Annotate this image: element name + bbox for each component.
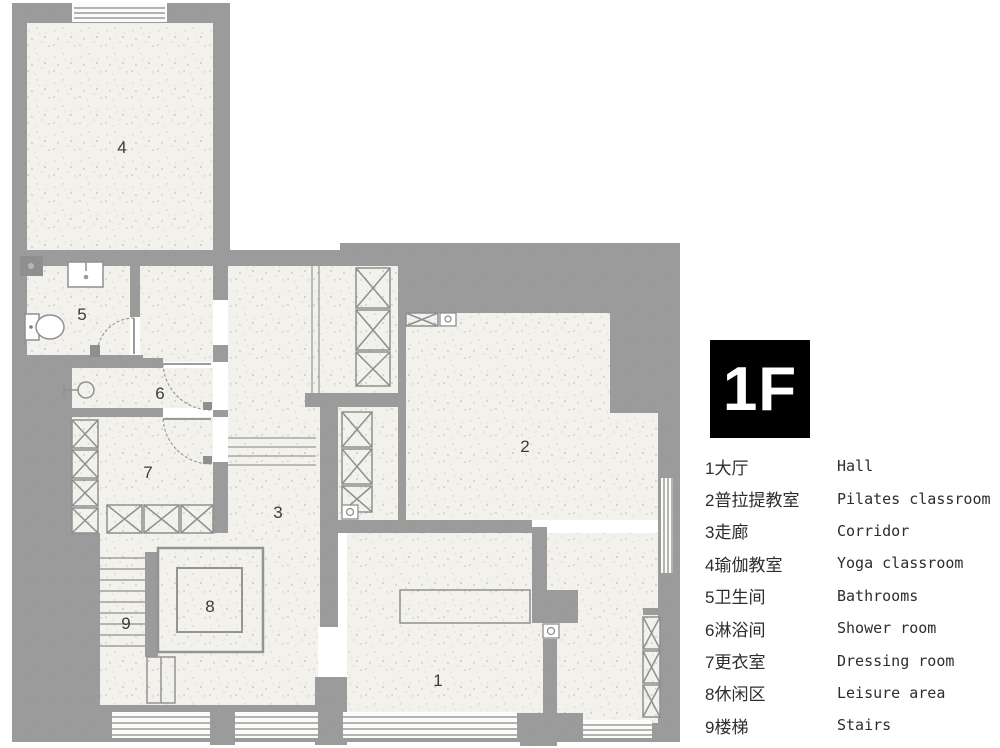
legend: 1F 1大厅 Hall 2普拉提教室 Pilates classroom 3走廊… (705, 340, 1000, 742)
sink-icon (68, 262, 103, 287)
locker-boxes-row (107, 505, 213, 533)
room-label-bathroom: 5 (77, 305, 86, 325)
legend-en-label: Stairs (837, 716, 891, 734)
legend-row-shower: 6淋浴间 Shower room (705, 612, 1000, 644)
window-top (72, 3, 167, 22)
hall-floor (347, 533, 547, 723)
reception-desk (400, 590, 530, 623)
floor-badge: 1F (710, 340, 810, 438)
legend-zh-label: 3走廊 (705, 518, 837, 543)
legend-zh-label: 9楼梯 (705, 713, 837, 738)
legend-en-label: Bathrooms (837, 587, 918, 605)
legend-row-pilates: 2普拉提教室 Pilates classroom (705, 482, 1000, 514)
legend-en-label: Hall (837, 457, 873, 475)
legend-zh-label: 1大厅 (705, 454, 837, 479)
hall-boxes-right (643, 617, 660, 717)
corridor-circle-box (342, 505, 358, 519)
legend-row-hall: 1大厅 Hall (705, 450, 1000, 482)
legend-en-label: Yoga classroom (837, 554, 963, 572)
floor-badge-label: 1F (723, 354, 797, 425)
room-label-leisure-area: 8 (205, 597, 214, 617)
hall-circle-box (543, 624, 559, 638)
legend-zh-label: 7更衣室 (705, 648, 837, 673)
legend-zh-label: 5卫生间 (705, 583, 837, 608)
room-4-floor (27, 23, 213, 250)
column-boxes-lower (342, 412, 372, 512)
window-bottom-4 (583, 720, 652, 738)
legend-row-stairs: 9楼梯 Stairs (705, 709, 1000, 741)
room-label-yoga-classroom: 4 (117, 138, 126, 158)
legend-row-leisure: 8休闲区 Leisure area (705, 677, 1000, 709)
room-label-corridor: 3 (273, 503, 282, 523)
legend-row-dressing: 7更衣室 Dressing room (705, 644, 1000, 676)
legend-en-label: Dressing room (837, 652, 954, 670)
legend-zh-label: 6淋浴间 (705, 616, 837, 641)
window-bottom-2 (235, 712, 318, 738)
window-bottom-1 (112, 712, 210, 738)
legend-row-bathrooms: 5卫生间 Bathrooms (705, 580, 1000, 612)
legend-row-yoga: 4瑜伽教室 Yoga classroom (705, 547, 1000, 579)
legend-zh-label: 2普拉提教室 (705, 486, 837, 511)
window-right (661, 478, 673, 573)
room-label-stairs: 9 (121, 614, 130, 634)
room-2-mini-box (440, 313, 456, 326)
room-label-shower-room: 6 (155, 384, 164, 404)
room-label-hall: 1 (433, 671, 442, 691)
legend-en-label: Leisure area (837, 684, 945, 702)
legend-zh-label: 8休闲区 (705, 680, 837, 705)
legend-en-label: Pilates classroom (837, 490, 991, 508)
room-2-floor-upper (406, 313, 610, 413)
hall-floor-right (547, 533, 658, 723)
legend-rows: 1大厅 Hall 2普拉提教室 Pilates classroom 3走廊 Co… (705, 450, 1000, 742)
legend-row-corridor: 3走廊 Corridor (705, 515, 1000, 547)
vestibule-floor (140, 266, 213, 362)
room-2-corner-box (406, 313, 438, 326)
toilet-icon (25, 314, 64, 340)
corridor-floor-upper (228, 266, 356, 393)
column-boxes-upper (356, 268, 390, 386)
stair-bottom-cells (147, 657, 175, 703)
floor-plan-drawing (0, 0, 690, 748)
floor-plan-page: 1 2 3 4 5 6 7 8 9 1F 1大厅 Hall 2普拉提教室 Pil… (0, 0, 1000, 748)
locker-boxes-left (72, 420, 98, 533)
legend-zh-label: 4瑜伽教室 (705, 551, 837, 576)
legend-en-label: Shower room (837, 619, 936, 637)
room-2-floor-lower (406, 413, 658, 520)
window-bottom-3 (343, 712, 517, 738)
legend-en-label: Corridor (837, 522, 909, 540)
room-label-dressing-room: 7 (143, 463, 152, 483)
room-label-pilates-classroom: 2 (520, 437, 529, 457)
